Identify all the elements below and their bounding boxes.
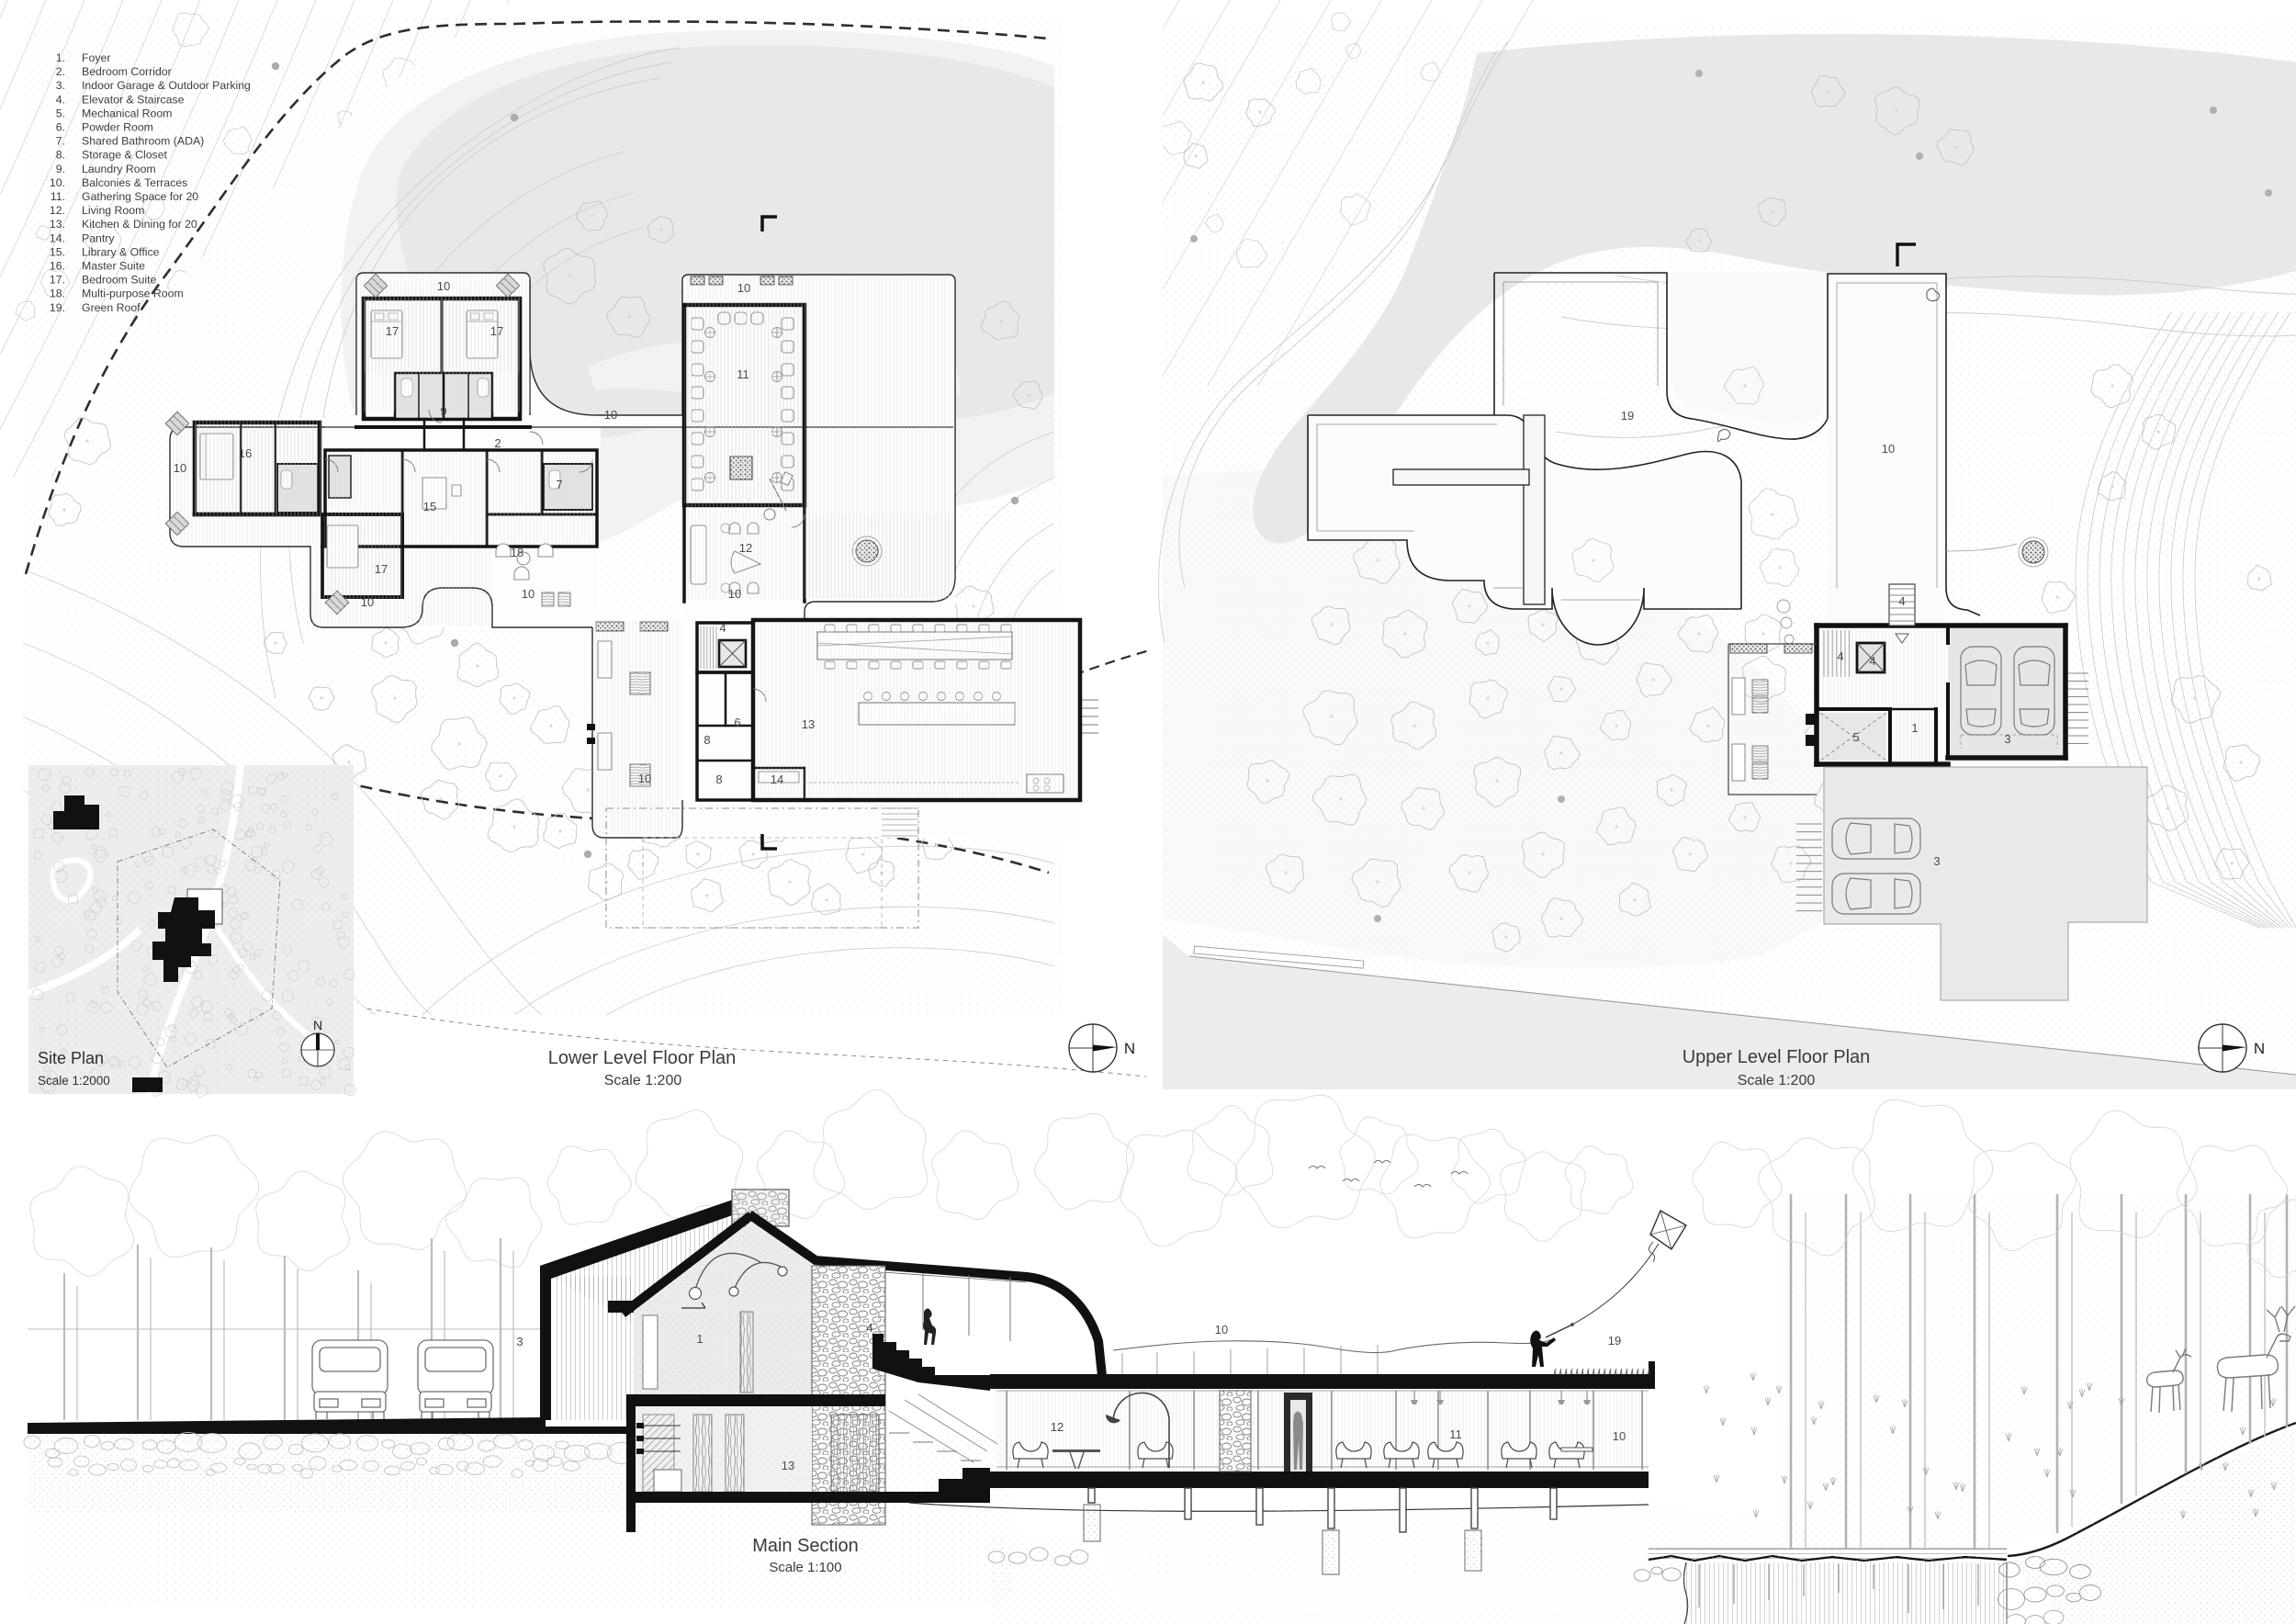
svg-text:16: 16 bbox=[239, 446, 252, 460]
svg-text:Lower Level Floor Plan: Lower Level Floor Plan bbox=[548, 1048, 737, 1068]
svg-text:2.: 2. bbox=[56, 65, 65, 78]
svg-text:1: 1 bbox=[696, 1332, 703, 1346]
svg-text:10: 10 bbox=[522, 587, 535, 601]
svg-text:17.: 17. bbox=[50, 274, 65, 287]
svg-text:10: 10 bbox=[604, 408, 617, 422]
svg-text:3: 3 bbox=[1933, 854, 1940, 868]
svg-text:Elevator & Staircase: Elevator & Staircase bbox=[82, 93, 185, 106]
svg-text:7: 7 bbox=[556, 478, 562, 491]
svg-text:N: N bbox=[313, 1018, 322, 1032]
svg-text:15: 15 bbox=[423, 500, 436, 513]
svg-text:3: 3 bbox=[516, 1335, 523, 1348]
svg-text:N: N bbox=[2254, 1040, 2265, 1057]
svg-text:8: 8 bbox=[715, 773, 722, 786]
svg-text:13: 13 bbox=[802, 717, 815, 731]
svg-text:18.: 18. bbox=[50, 288, 65, 300]
svg-text:13: 13 bbox=[782, 1459, 794, 1472]
svg-text:Bedroom Suite: Bedroom Suite bbox=[82, 274, 157, 287]
svg-text:19: 19 bbox=[1621, 409, 1634, 423]
svg-text:10: 10 bbox=[737, 281, 750, 295]
svg-text:N: N bbox=[1124, 1040, 1135, 1057]
svg-text:17: 17 bbox=[375, 562, 388, 576]
svg-text:7.: 7. bbox=[56, 135, 65, 148]
svg-text:1: 1 bbox=[1911, 721, 1918, 735]
svg-text:Scale 1:200: Scale 1:200 bbox=[604, 1073, 682, 1088]
svg-text:15.: 15. bbox=[50, 245, 65, 258]
svg-text:Living Room: Living Room bbox=[82, 204, 144, 217]
svg-text:5.: 5. bbox=[56, 107, 65, 119]
svg-text:12: 12 bbox=[1051, 1420, 1064, 1434]
svg-text:10: 10 bbox=[728, 587, 741, 601]
svg-text:3: 3 bbox=[2004, 732, 2010, 746]
svg-text:11.: 11. bbox=[51, 190, 65, 203]
svg-text:11: 11 bbox=[1449, 1427, 1462, 1441]
svg-text:10: 10 bbox=[1882, 442, 1895, 456]
svg-text:Kitchen & Dining for 20: Kitchen & Dining for 20 bbox=[82, 218, 197, 231]
svg-text:8: 8 bbox=[703, 733, 710, 747]
svg-text:16.: 16. bbox=[50, 260, 65, 273]
svg-text:Multi-purpose Room: Multi-purpose Room bbox=[82, 288, 184, 300]
svg-text:10: 10 bbox=[174, 461, 186, 475]
svg-text:Site Plan: Site Plan bbox=[38, 1049, 104, 1067]
svg-text:17: 17 bbox=[490, 324, 503, 338]
svg-text:2: 2 bbox=[494, 436, 501, 450]
svg-text:Foyer: Foyer bbox=[82, 51, 110, 64]
svg-text:Laundry Room: Laundry Room bbox=[82, 163, 156, 175]
svg-text:Gathering Space for 20: Gathering Space for 20 bbox=[82, 190, 198, 203]
svg-text:18: 18 bbox=[511, 546, 523, 559]
svg-text:Green Roof: Green Roof bbox=[82, 301, 141, 314]
svg-text:Scale 1:200: Scale 1:200 bbox=[1738, 1073, 1816, 1088]
svg-text:Powder Room: Powder Room bbox=[82, 121, 153, 134]
svg-text:Master Suite: Master Suite bbox=[82, 260, 145, 273]
svg-text:1.: 1. bbox=[56, 51, 65, 64]
svg-text:14: 14 bbox=[771, 773, 783, 786]
svg-text:10: 10 bbox=[1613, 1429, 1626, 1443]
svg-text:Storage & Closet: Storage & Closet bbox=[82, 149, 168, 162]
svg-text:6: 6 bbox=[734, 716, 740, 729]
svg-text:Bedroom Corridor: Bedroom Corridor bbox=[82, 65, 172, 78]
svg-text:3.: 3. bbox=[56, 79, 65, 92]
svg-text:9: 9 bbox=[440, 404, 446, 418]
svg-text:Balconies & Terraces: Balconies & Terraces bbox=[82, 176, 187, 189]
svg-text:Pantry: Pantry bbox=[82, 231, 115, 244]
svg-text:13.: 13. bbox=[50, 218, 65, 231]
svg-text:8.: 8. bbox=[56, 149, 65, 162]
svg-text:Shared Bathroom (ADA): Shared Bathroom (ADA) bbox=[82, 135, 204, 148]
svg-text:Upper Level Floor Plan: Upper Level Floor Plan bbox=[1683, 1047, 1871, 1067]
svg-text:4.: 4. bbox=[56, 93, 65, 106]
svg-text:Indoor Garage & Outdoor Parkin: Indoor Garage & Outdoor Parking bbox=[82, 79, 251, 92]
svg-text:4: 4 bbox=[719, 621, 726, 635]
svg-text:4: 4 bbox=[1869, 654, 1875, 668]
svg-text:5: 5 bbox=[1852, 730, 1859, 744]
svg-text:19.: 19. bbox=[50, 301, 65, 314]
svg-text:10: 10 bbox=[1215, 1323, 1228, 1336]
svg-text:9.: 9. bbox=[56, 163, 65, 175]
svg-text:10: 10 bbox=[437, 279, 450, 293]
svg-text:Scale 1:2000: Scale 1:2000 bbox=[38, 1074, 110, 1088]
svg-text:17: 17 bbox=[386, 324, 399, 338]
svg-text:4: 4 bbox=[866, 1321, 872, 1335]
svg-text:Library & Office: Library & Office bbox=[82, 245, 160, 258]
svg-text:Scale 1:100: Scale 1:100 bbox=[769, 1560, 841, 1575]
svg-text:12: 12 bbox=[739, 541, 752, 555]
svg-text:Main Section: Main Section bbox=[752, 1536, 859, 1556]
svg-text:4: 4 bbox=[1898, 594, 1905, 608]
svg-text:10: 10 bbox=[638, 772, 651, 785]
svg-text:4: 4 bbox=[1837, 649, 1843, 663]
svg-text:6.: 6. bbox=[56, 121, 65, 134]
svg-text:10: 10 bbox=[361, 595, 374, 609]
svg-text:14.: 14. bbox=[50, 231, 65, 244]
svg-text:12.: 12. bbox=[50, 204, 65, 217]
svg-text:19: 19 bbox=[1608, 1334, 1621, 1348]
svg-text:10.: 10. bbox=[50, 176, 65, 189]
svg-text:Mechanical Room: Mechanical Room bbox=[82, 107, 172, 119]
svg-text:11: 11 bbox=[737, 367, 749, 381]
